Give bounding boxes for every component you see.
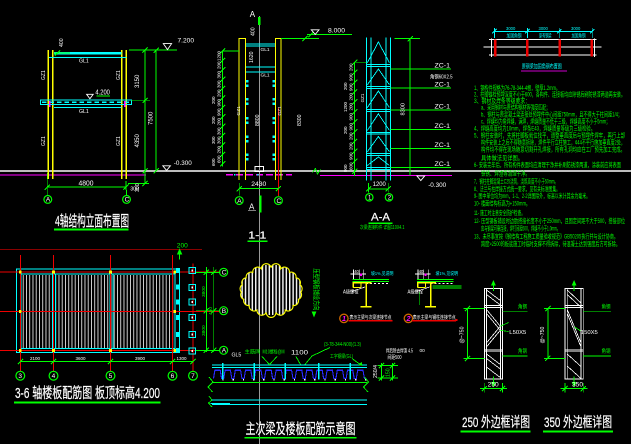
svg-text:ZC-1: ZC-1	[435, 162, 451, 168]
svg-text:3: 3	[18, 373, 22, 380]
svg-text:角钢: 角钢	[518, 303, 527, 311]
svg-text:压型钢板铺设方向: 压型钢板铺设方向	[312, 269, 321, 311]
svg-text:450: 450	[208, 307, 214, 315]
svg-text:(3-78-344-N00)(1.3): (3-78-344-N00)(1.3)	[324, 342, 361, 348]
svg-text:3150: 3150	[135, 74, 141, 88]
svg-text:@~750: @~750	[460, 326, 466, 343]
svg-text:8、法兰与柱焊接方式统一要求，见有关标准图集。: 8、法兰与柱焊接方式统一要求，见有关标准图集。	[474, 184, 560, 193]
svg-text:1620: 1620	[249, 51, 255, 63]
svg-text:200: 200	[348, 63, 353, 71]
svg-text:B: B	[222, 308, 226, 315]
svg-text:900: 900	[343, 164, 348, 172]
svg-text:M10螺栓@M: M10螺栓@M	[263, 349, 285, 356]
svg-text:b、钢柱与原混凝土梁连接处预埋件中心间距750mm，且不得大: b、钢柱与原混凝土梁连接处预埋件中心间距750mm，且不得大于柱间距1/4；	[481, 110, 622, 119]
svg-text:铁锈、焊渣等清理干净。: 铁锈、焊渣等清理干净。	[481, 169, 530, 178]
svg-text:150X5: 150X5	[581, 330, 598, 336]
svg-text:1200: 1200	[343, 101, 348, 112]
svg-text:900: 900	[348, 83, 353, 91]
svg-text:1200: 1200	[373, 181, 386, 188]
svg-text:GL5: GL5	[232, 353, 242, 359]
svg-text:3800: 3800	[201, 325, 207, 336]
svg-text:6- 安装完毕后，所有构件表面均应清理干净并补刷防锈漆两道，: 6- 安装完毕后，所有构件表面均应清理干净并补刷防锈漆两道，涂装前应将表面	[474, 160, 621, 169]
svg-text:300: 300	[216, 136, 221, 144]
svg-text:2430: 2430	[251, 181, 266, 188]
svg-text:600: 600	[348, 162, 353, 170]
svg-text:构件均不得在现场随意切割开孔焊接，所有孔洞均应在工厂预先加工: 构件均不得在现场随意切割开孔焊接，所有孔洞均应在工厂预先加工完成。	[481, 145, 625, 154]
svg-text:-0.300: -0.300	[174, 160, 192, 167]
svg-text:ZC-1: ZC-1	[435, 124, 451, 130]
svg-text:主筋网: 主筋网	[245, 349, 261, 356]
svg-text:GL1: GL1	[261, 47, 270, 53]
svg-text:1200: 1200	[216, 50, 221, 61]
svg-text:3000: 3000	[539, 26, 549, 31]
svg-text:A: A	[250, 10, 256, 19]
svg-text:应与钢梁可靠连接，焊钉间距500，焊缝不小于1.0mm。: 应与钢梁可靠连接，焊钉间距500，焊缝不小于1.0mm。	[481, 224, 560, 233]
svg-text:900: 900	[216, 98, 221, 106]
svg-text:7、钢柱柱脚混凝土C25浇筑，浇筑高度不小于50mm。: 7、钢柱柱脚混凝土C25浇筑，浇筑高度不小于50mm。	[474, 177, 558, 186]
svg-text:GZ1: GZ1	[236, 106, 242, 116]
svg-text:L50X5: L50X5	[509, 330, 526, 336]
svg-text:900: 900	[348, 122, 353, 130]
svg-text:5、钢柱安装时，先将柱脚板就位找平，调整垂直度后与预埋件焊牢: 5、钢柱安装时，先将柱脚板就位找平，调整垂直度后与预埋件焊牢，再行上部	[474, 131, 625, 140]
svg-text:8300: 8300	[297, 114, 303, 126]
svg-text:GL1: GL1	[79, 59, 89, 65]
svg-text:A: A	[222, 348, 227, 355]
svg-text:次梁连接构件 详图110X4.1: 次梁连接构件 详图110X4.1	[360, 224, 405, 231]
svg-text:300: 300	[135, 183, 141, 192]
svg-text:C: C	[277, 198, 282, 205]
svg-text:2100: 2100	[30, 356, 41, 361]
svg-text:a、采用钢材与原结构钢材等强度匹配；: a、采用钢材与原结构钢材等强度匹配；	[481, 103, 550, 112]
svg-text:900: 900	[348, 112, 353, 120]
svg-text:900: 900	[348, 152, 353, 160]
svg-text:200: 200	[216, 145, 221, 153]
svg-text:GZ1: GZ1	[360, 93, 365, 102]
svg-text:GZ1: GZ1	[41, 70, 47, 80]
svg-text:2: 2	[406, 314, 411, 323]
svg-text:300: 300	[216, 70, 221, 78]
svg-text:400: 400	[251, 27, 257, 36]
svg-text:300: 300	[211, 136, 216, 144]
svg-text:250: 250	[488, 382, 500, 388]
svg-text:40: 40	[354, 269, 359, 274]
svg-text:ZC-1: ZC-1	[435, 105, 451, 111]
svg-text:GZ1: GZ1	[41, 136, 47, 146]
svg-text:600: 600	[211, 158, 216, 166]
svg-text:-0.300: -0.300	[428, 182, 446, 189]
svg-text:坡1%,见说明: 坡1%,见说明	[371, 270, 394, 277]
svg-text:C: C	[222, 270, 227, 277]
svg-text:间距500: 间距500	[388, 354, 402, 361]
svg-text:6: 6	[171, 373, 175, 380]
svg-text:加固角钢: 加固角钢	[572, 32, 586, 40]
svg-text:10- 楼面结构标高为+150mm。: 10- 楼面结构标高为+150mm。	[474, 199, 530, 208]
svg-text:表示主梁与次梁连接节点: 表示主梁与次梁连接节点	[350, 313, 392, 321]
svg-text:具体做法见详图。: 具体做法见详图。	[481, 153, 523, 162]
svg-text:焊后除去焊渣 4.5: 焊后除去焊渣 4.5	[386, 348, 413, 355]
svg-text:5: 5	[109, 373, 113, 380]
svg-text:原钢梁加固角钢布置图: 原钢梁加固角钢布置图	[522, 63, 562, 71]
svg-text:ZC-1: ZC-1	[435, 64, 451, 70]
svg-text:坡1%,见说明: 坡1%,见说明	[436, 270, 459, 277]
svg-text:3600: 3600	[76, 356, 87, 361]
svg-text:4: 4	[52, 373, 56, 380]
svg-text:A: A	[46, 197, 51, 204]
svg-text:ZC-1: ZC-1	[435, 143, 451, 149]
svg-text:200: 200	[177, 244, 189, 250]
svg-text:200: 200	[348, 142, 353, 150]
svg-text:300: 300	[216, 127, 221, 135]
svg-text:200: 200	[348, 92, 353, 100]
svg-text:4350: 4350	[135, 133, 141, 147]
svg-text:250/4: 250/4	[373, 365, 379, 378]
svg-text:4、焊缝高度均为10mm，焊条E43，焊缝质量等级为三级检验: 4、焊缝高度均为10mm，焊条E43，焊缝质量等级为三级检验。	[474, 124, 595, 133]
svg-text:7500: 7500	[149, 111, 155, 125]
svg-text:13、未尽事宜按《钢结构工程施工质量验收规范》GB50205: 13、未尽事宜按《钢结构工程施工质量验收规范》GB50205执行并与设计协商。	[474, 232, 618, 241]
svg-text:ZC-1: ZC-1	[435, 83, 451, 89]
svg-text:3000: 3000	[506, 26, 516, 31]
svg-text:1300: 1300	[177, 356, 188, 361]
svg-text:@~750: @~750	[540, 326, 546, 343]
svg-text:A: A	[237, 198, 242, 205]
svg-text:C: C	[125, 197, 130, 204]
svg-text:200: 200	[348, 102, 353, 110]
svg-text:GZ1: GZ1	[116, 136, 122, 146]
svg-text:角钢: 角钢	[602, 303, 611, 311]
svg-text:4轴结构立面布置图: 4轴结构立面布置图	[55, 213, 129, 230]
svg-text:600: 600	[216, 155, 221, 163]
svg-text:1100: 1100	[291, 350, 308, 357]
svg-text:11- 施工时注意安全防护检查。: 11- 施工时注意安全防护检查。	[474, 208, 525, 217]
svg-text:200: 200	[211, 96, 216, 104]
svg-text:GL1: GL1	[261, 73, 270, 79]
svg-text:200: 200	[348, 132, 353, 140]
svg-text:200: 200	[216, 89, 221, 97]
svg-text:角钢60X2.5: 角钢60X2.5	[430, 74, 453, 81]
svg-text:4800: 4800	[79, 180, 94, 187]
svg-text:250 外边框详图: 250 外边框详图	[462, 414, 530, 430]
svg-text:400: 400	[59, 38, 65, 47]
svg-text:表示主梁与钢柱连接节点: 表示主梁与钢柱连接节点	[413, 313, 456, 321]
svg-text:3800: 3800	[201, 286, 207, 297]
svg-text:200: 200	[211, 116, 216, 124]
svg-text:原有钢梁: 原有钢梁	[539, 32, 552, 40]
svg-text:200: 200	[216, 61, 221, 69]
svg-text:200: 200	[343, 82, 348, 90]
svg-text:40: 40	[419, 269, 424, 274]
svg-text:9- 图中单位均为mm，1-1、2-2详图除外，标高以米计其: 9- 图中单位均为mm，1-1、2-2详图除外，标高以米计其余为毫米。	[474, 191, 590, 200]
svg-text:350 外边框详图: 350 外边框详图	[544, 414, 612, 430]
svg-text:GZ1: GZ1	[116, 70, 122, 80]
svg-text:8300: 8300	[401, 103, 407, 115]
svg-text:900: 900	[216, 108, 221, 116]
svg-text:350: 350	[572, 382, 584, 388]
svg-text:A级螺栓: A级螺栓	[408, 289, 424, 296]
svg-text:A: A	[249, 202, 255, 211]
svg-text:GZ1: GZ1	[277, 106, 283, 116]
svg-text:3-6 轴楼板配筋图 板顶标高4.200: 3-6 轴楼板配筋图 板顶标高4.200	[15, 384, 160, 402]
svg-text:00: 00	[420, 348, 426, 354]
svg-text:7: 7	[191, 373, 195, 380]
svg-text:900: 900	[348, 73, 353, 81]
svg-text:跨度>2500的板底施工时临时支撑不得拆除，待混凝土达到强度: 跨度>2500的板底施工时临时支撑不得拆除，待混凝土达到强度后方可拆除。	[481, 239, 620, 248]
svg-text:角钢: 角钢	[602, 347, 611, 355]
svg-text:8.000: 8.000	[328, 27, 345, 34]
svg-text:300: 300	[216, 80, 221, 88]
svg-text:工字钢梁(GL): 工字钢梁(GL)	[330, 353, 353, 360]
svg-text:8800: 8800	[255, 114, 261, 126]
svg-text:7.200: 7.200	[178, 37, 195, 44]
svg-text:200: 200	[216, 117, 221, 125]
svg-text:构件安装上之后不得随意拆除，焊件平行立柱施工，¢44不平行施: 构件安装上之后不得随意拆除，焊件平行立柱施工，¢44不平行施加垂直度2处，	[481, 138, 625, 147]
svg-text:加固角钢: 加固角钢	[507, 32, 522, 40]
svg-text:3900: 3900	[135, 356, 146, 361]
svg-text:GL1: GL1	[79, 109, 89, 115]
svg-text:1: 1	[342, 314, 346, 323]
svg-text:角钢: 角钢	[518, 347, 527, 355]
svg-text:A级螺栓: A级螺栓	[343, 289, 359, 296]
svg-text:c、焊缝均为角焊缝，满焊，焊缝质量不低于三级，焊缝高度不小于: c、焊缝均为角焊缝，满焊，焊缝质量不低于三级，焊缝高度不小于5mm；	[481, 117, 610, 126]
svg-text:A-A: A-A	[371, 212, 391, 224]
svg-text:主次梁及楼板配筋示意图: 主次梁及楼板配筋示意图	[246, 420, 356, 438]
svg-text:1-1: 1-1	[248, 229, 266, 241]
svg-text:200: 200	[343, 126, 348, 134]
svg-text:12- 压型钢板铺设时边肋搭接长度不小于250mm，且固定间: 12- 压型钢板铺设时边肋搭接长度不小于250mm，且固定间距不大于500，搭接…	[474, 216, 625, 225]
svg-text:150: 150	[385, 368, 391, 377]
svg-text:3000: 3000	[571, 26, 581, 31]
